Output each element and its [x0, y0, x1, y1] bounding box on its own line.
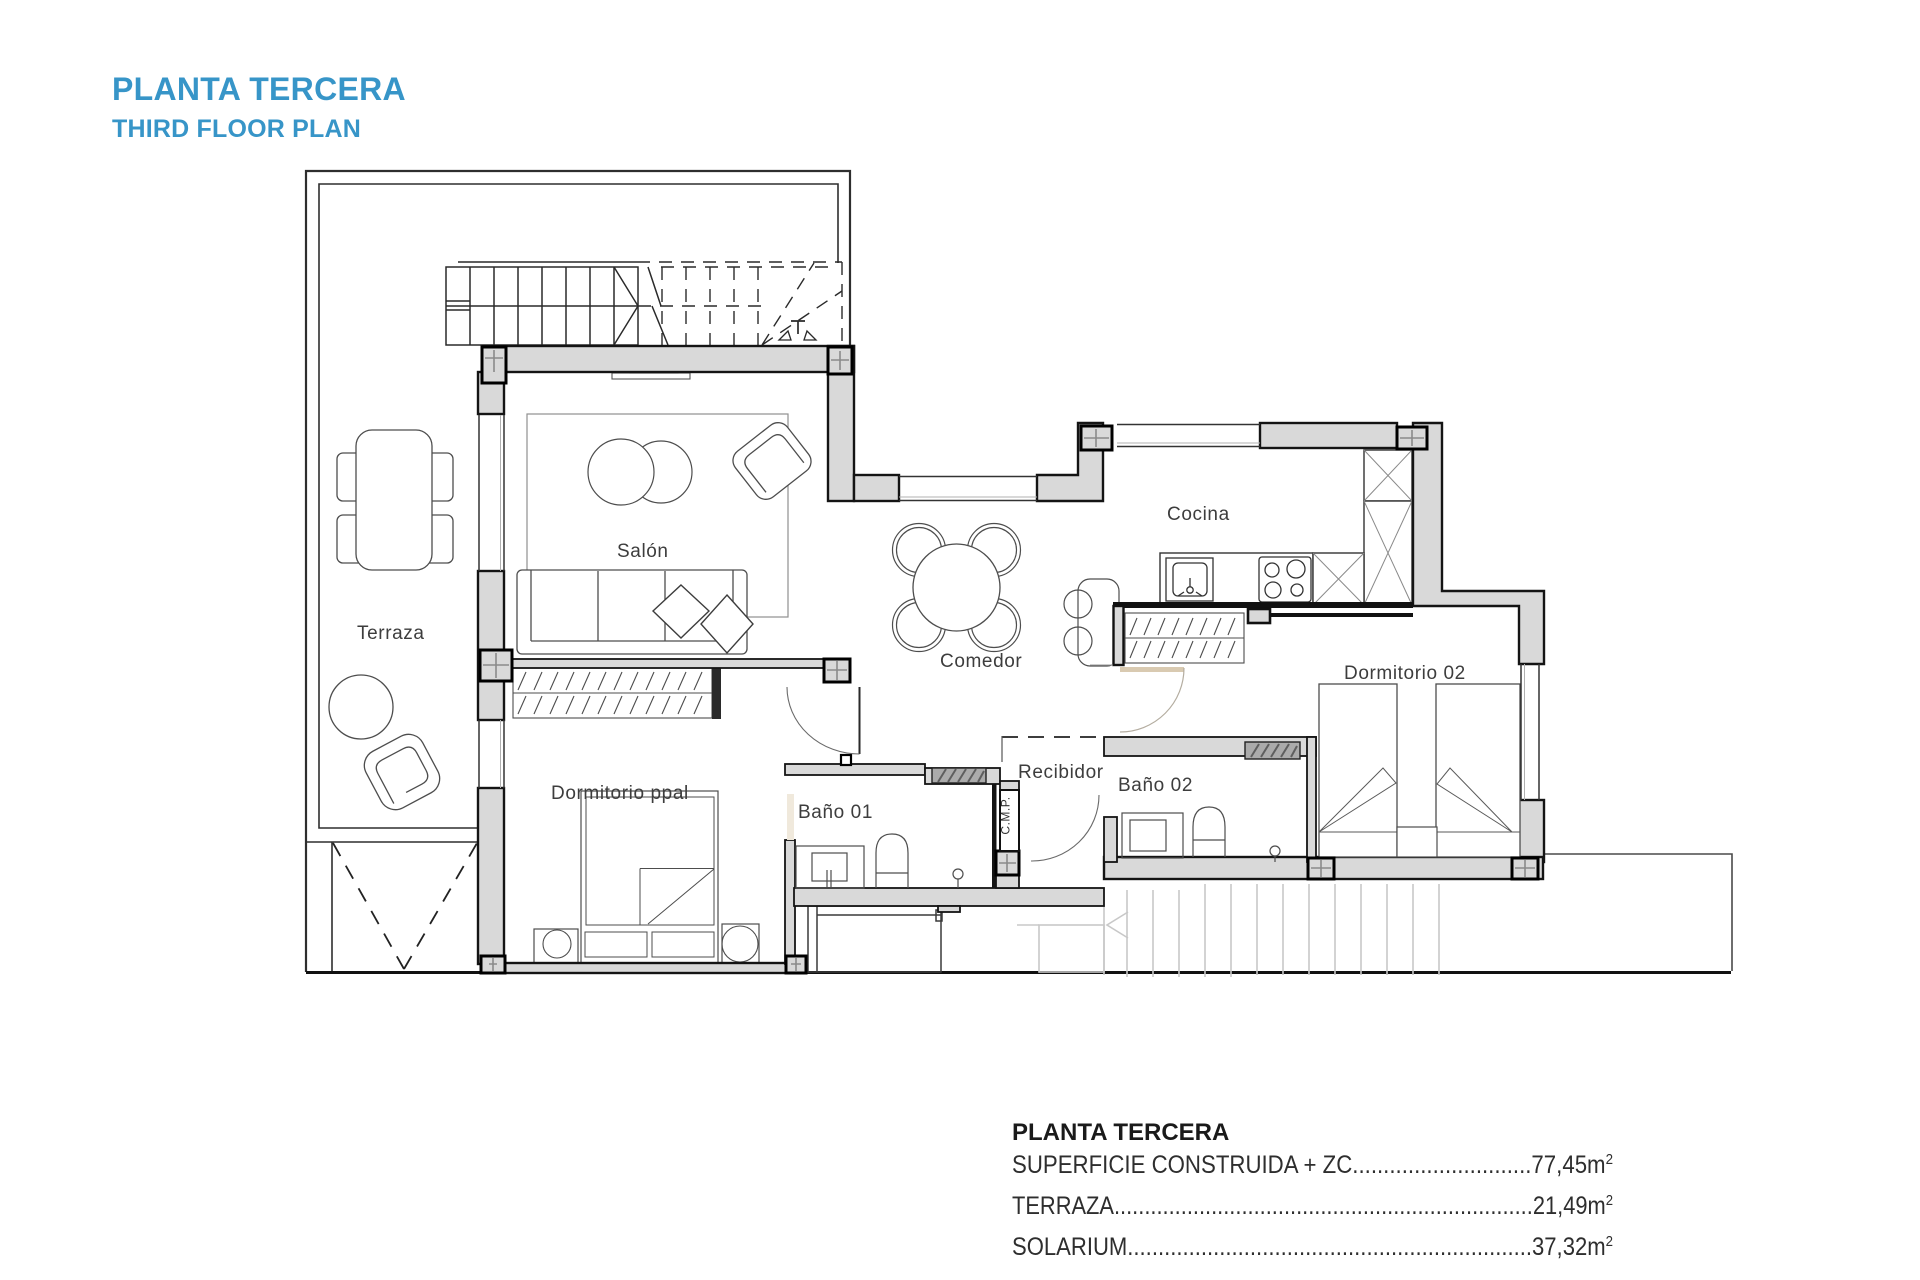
svg-text:C.M.P.: C.M.P.: [999, 796, 1013, 834]
svg-text:THIRD FLOOR PLAN: THIRD FLOOR PLAN: [112, 115, 361, 143]
svg-text:Dormitorio 02: Dormitorio 02: [1344, 663, 1466, 684]
svg-text:PLANTA TERCERA: PLANTA TERCERA: [112, 71, 406, 107]
svg-text:Cocina: Cocina: [1167, 504, 1230, 525]
svg-text:PLANTA TERCERA: PLANTA TERCERA: [1012, 1119, 1229, 1146]
svg-text:Baño 01: Baño 01: [798, 802, 873, 823]
svg-text:Salón: Salón: [617, 541, 669, 562]
svg-text:Recibidor: Recibidor: [1018, 762, 1104, 783]
svg-text:Terraza: Terraza: [357, 623, 425, 644]
svg-text:Baño 02: Baño 02: [1118, 775, 1193, 796]
svg-text:Dormitorio ppal: Dormitorio ppal: [551, 783, 689, 804]
svg-text:Comedor: Comedor: [940, 651, 1022, 672]
svg-text:SUPERFICIE CONSTRUIDA + ZC....: SUPERFICIE CONSTRUIDA + ZC..............…: [1012, 1151, 1613, 1179]
svg-text:TERRAZA.......................: TERRAZA.................................…: [1012, 1192, 1613, 1220]
svg-text:SOLARIUM......................: SOLARIUM................................…: [1012, 1233, 1613, 1261]
